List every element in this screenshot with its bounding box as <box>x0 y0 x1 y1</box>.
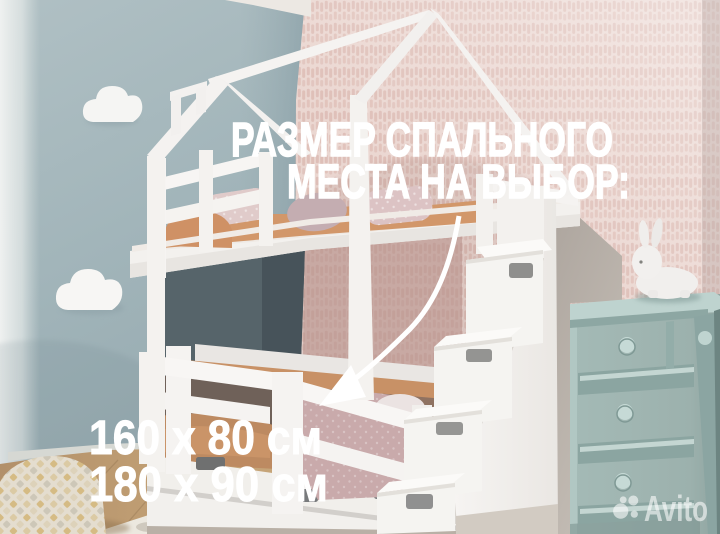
svg-text:Avito: Avito <box>644 489 708 529</box>
svg-text:МЕСТА НА ВЫБОР:: МЕСТА НА ВЫБОР: <box>287 155 630 209</box>
svg-text:180 x 90 см: 180 x 90 см <box>89 457 328 512</box>
